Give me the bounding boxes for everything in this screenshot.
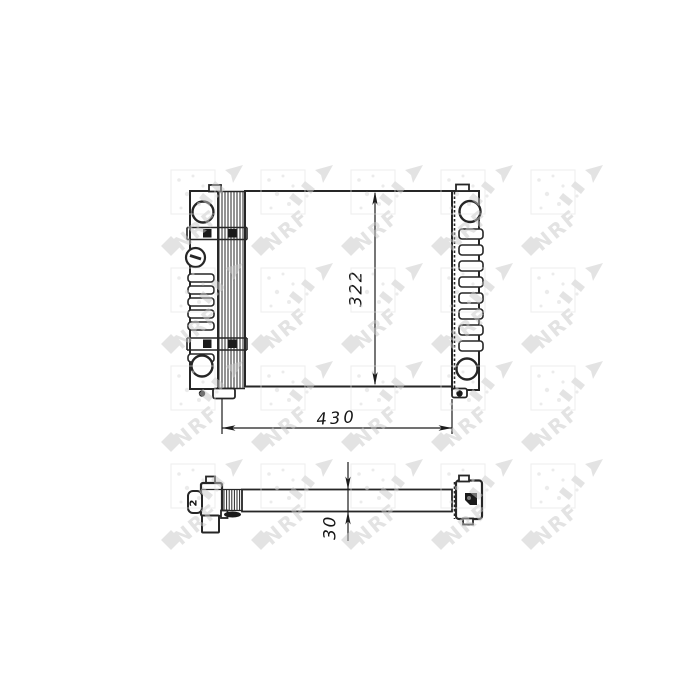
product-image: NRF [0,0,700,700]
dimension-depth-label: 30 [321,515,341,540]
cooling-fins [219,192,245,389]
connector-stamp: 2 [189,499,200,506]
side-fins [223,490,242,518]
radiator-technical-drawing: NRF [0,0,700,700]
right-mounting-foot [452,389,467,398]
dimension-height-label: 322 [347,270,367,307]
dimension-width: 430 [222,399,452,434]
port-bottom-right [457,359,478,380]
right-tank-cap [456,185,469,192]
